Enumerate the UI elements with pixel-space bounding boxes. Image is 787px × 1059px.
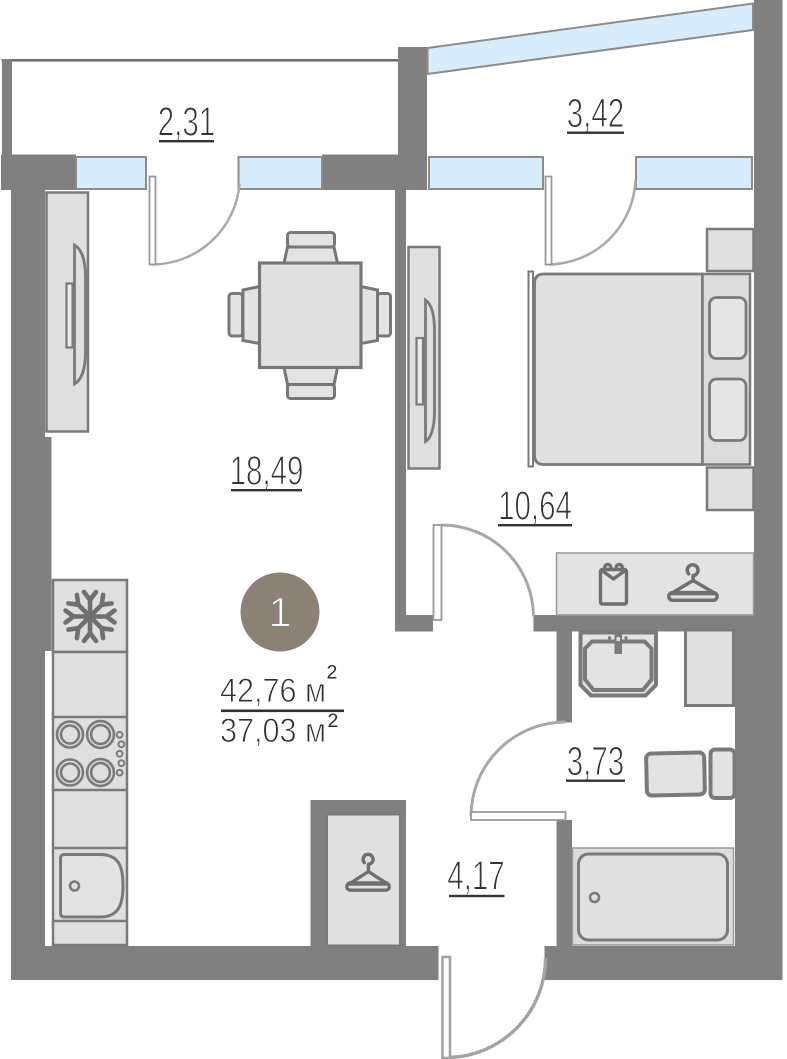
svg-text:2: 2 [328, 710, 339, 732]
svg-text:3,42: 3,42 [567, 90, 624, 136]
svg-text:42,76 м: 42,76 м [220, 672, 326, 710]
svg-text:2: 2 [327, 662, 338, 684]
svg-text:10,64: 10,64 [498, 483, 572, 529]
svg-text:1: 1 [268, 589, 291, 636]
svg-text:3,73: 3,73 [567, 738, 624, 784]
svg-text:4,17: 4,17 [447, 853, 504, 899]
svg-text:18,49: 18,49 [230, 448, 304, 494]
svg-text:37,03 м: 37,03 м [220, 712, 326, 750]
svg-text:2,31: 2,31 [158, 99, 215, 145]
